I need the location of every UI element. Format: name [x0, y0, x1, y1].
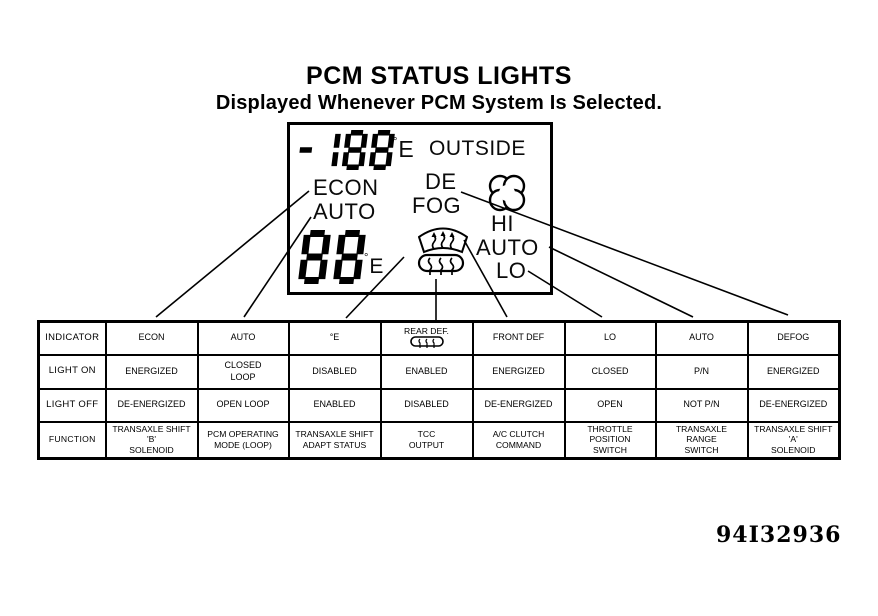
page-title: PCM STATUS LIGHTS — [0, 62, 878, 91]
table-cell: DISABLED — [289, 355, 381, 389]
table-cell: °E — [289, 322, 381, 355]
table-cell: CLOSED LOOP — [198, 355, 289, 389]
table-cell: PCM OPERATING MODE (LOOP) — [198, 422, 289, 459]
rear-defog-icon-small — [409, 336, 445, 350]
auto-left-label: AUTO — [313, 201, 376, 223]
table-cell: ENABLED — [289, 389, 381, 422]
row-header: INDICATOR — [39, 322, 106, 355]
table-cell: ENERGIZED — [748, 355, 840, 389]
table-cell: AUTO — [656, 322, 748, 355]
temp-setting-7seg — [298, 230, 374, 289]
outside-temp-unit: °E — [393, 137, 414, 161]
table-cell: ENABLED — [381, 355, 473, 389]
defog-label-line2: FOG — [412, 195, 461, 217]
table-cell: DE-ENERGIZED — [106, 389, 198, 422]
fan-lo-label: LO — [496, 260, 526, 282]
table-row: INDICATORECONAUTO°EREAR DEF.FRONT DEFLOA… — [39, 322, 840, 355]
table-cell: NOT P/N — [656, 389, 748, 422]
row-header: FUNCTION — [39, 422, 106, 459]
table-cell: TCC OUTPUT — [381, 422, 473, 459]
table-cell: TRANSAXLE SHIFT ADAPT STATUS — [289, 422, 381, 459]
table-cell: TRANSAXLE SHIFT 'B' SOLENOID — [106, 422, 198, 459]
row-header: LIGHT ON — [39, 355, 106, 389]
outside-label: OUTSIDE — [429, 138, 526, 159]
degree-icon: ° — [364, 252, 368, 264]
front-defrost-icon — [418, 223, 468, 255]
status-table-body: INDICATORECONAUTO°EREAR DEF.FRONT DEFLOA… — [39, 322, 840, 459]
rear-defog-icon — [417, 253, 467, 283]
temp-setting-unit: °E — [364, 253, 383, 277]
outside-temp-7seg — [297, 130, 401, 175]
row-header: LIGHT OFF — [39, 389, 106, 422]
table-cell: DE-ENERGIZED — [473, 389, 565, 422]
page-subtitle: Displayed Whenever PCM System Is Selecte… — [0, 92, 878, 115]
table-cell: OPEN LOOP — [198, 389, 289, 422]
table-cell: A/C CLUTCH COMMAND — [473, 422, 565, 459]
status-table: INDICATORECONAUTO°EREAR DEF.FRONT DEFLOA… — [37, 320, 841, 460]
fan-auto-label: AUTO — [476, 237, 539, 259]
figure-number: 94I32936 — [716, 522, 841, 548]
table-cell: DEFOG — [748, 322, 840, 355]
table-cell: DISABLED — [381, 389, 473, 422]
defog-label-line1: DE — [425, 171, 457, 193]
fan-hi-label: HI — [491, 213, 514, 235]
table-row: LIGHT OFFDE-ENERGIZEDOPEN LOOPENABLEDDIS… — [39, 389, 840, 422]
table-cell: ECON — [106, 322, 198, 355]
outside-temp-unit-letter: E — [398, 136, 413, 162]
table-cell: LO — [565, 322, 656, 355]
table-cell: DE-ENERGIZED — [748, 389, 840, 422]
table-row: LIGHT ONENERGIZEDCLOSED LOOPDISABLEDENAB… — [39, 355, 840, 389]
table-cell: REAR DEF. — [381, 322, 473, 355]
page: PCM STATUS LIGHTS Displayed Whenever PCM… — [0, 0, 878, 616]
fan-icon — [484, 170, 530, 216]
econ-label: ECON — [313, 177, 379, 199]
table-cell: FRONT DEF — [473, 322, 565, 355]
table-cell: TRANSAXLE SHIFT 'A' SOLENOID — [748, 422, 840, 459]
degree-icon: ° — [393, 136, 397, 148]
table-cell: OPEN — [565, 389, 656, 422]
table-cell: CLOSED — [565, 355, 656, 389]
table-cell: THROTTLE POSITION SWITCH — [565, 422, 656, 459]
table-cell: ENERGIZED — [473, 355, 565, 389]
table-cell: TRANSAXLE RANGE SWITCH — [656, 422, 748, 459]
table-cell: P/N — [656, 355, 748, 389]
table-cell: ENERGIZED — [106, 355, 198, 389]
table-cell: AUTO — [198, 322, 289, 355]
temp-setting-unit-letter: E — [369, 255, 383, 278]
table-row: FUNCTIONTRANSAXLE SHIFT 'B' SOLENOIDPCM … — [39, 422, 840, 459]
pcm-display-panel: °E OUTSIDE ECON AUTO DE FOG HI AUTO LO °… — [287, 122, 553, 295]
